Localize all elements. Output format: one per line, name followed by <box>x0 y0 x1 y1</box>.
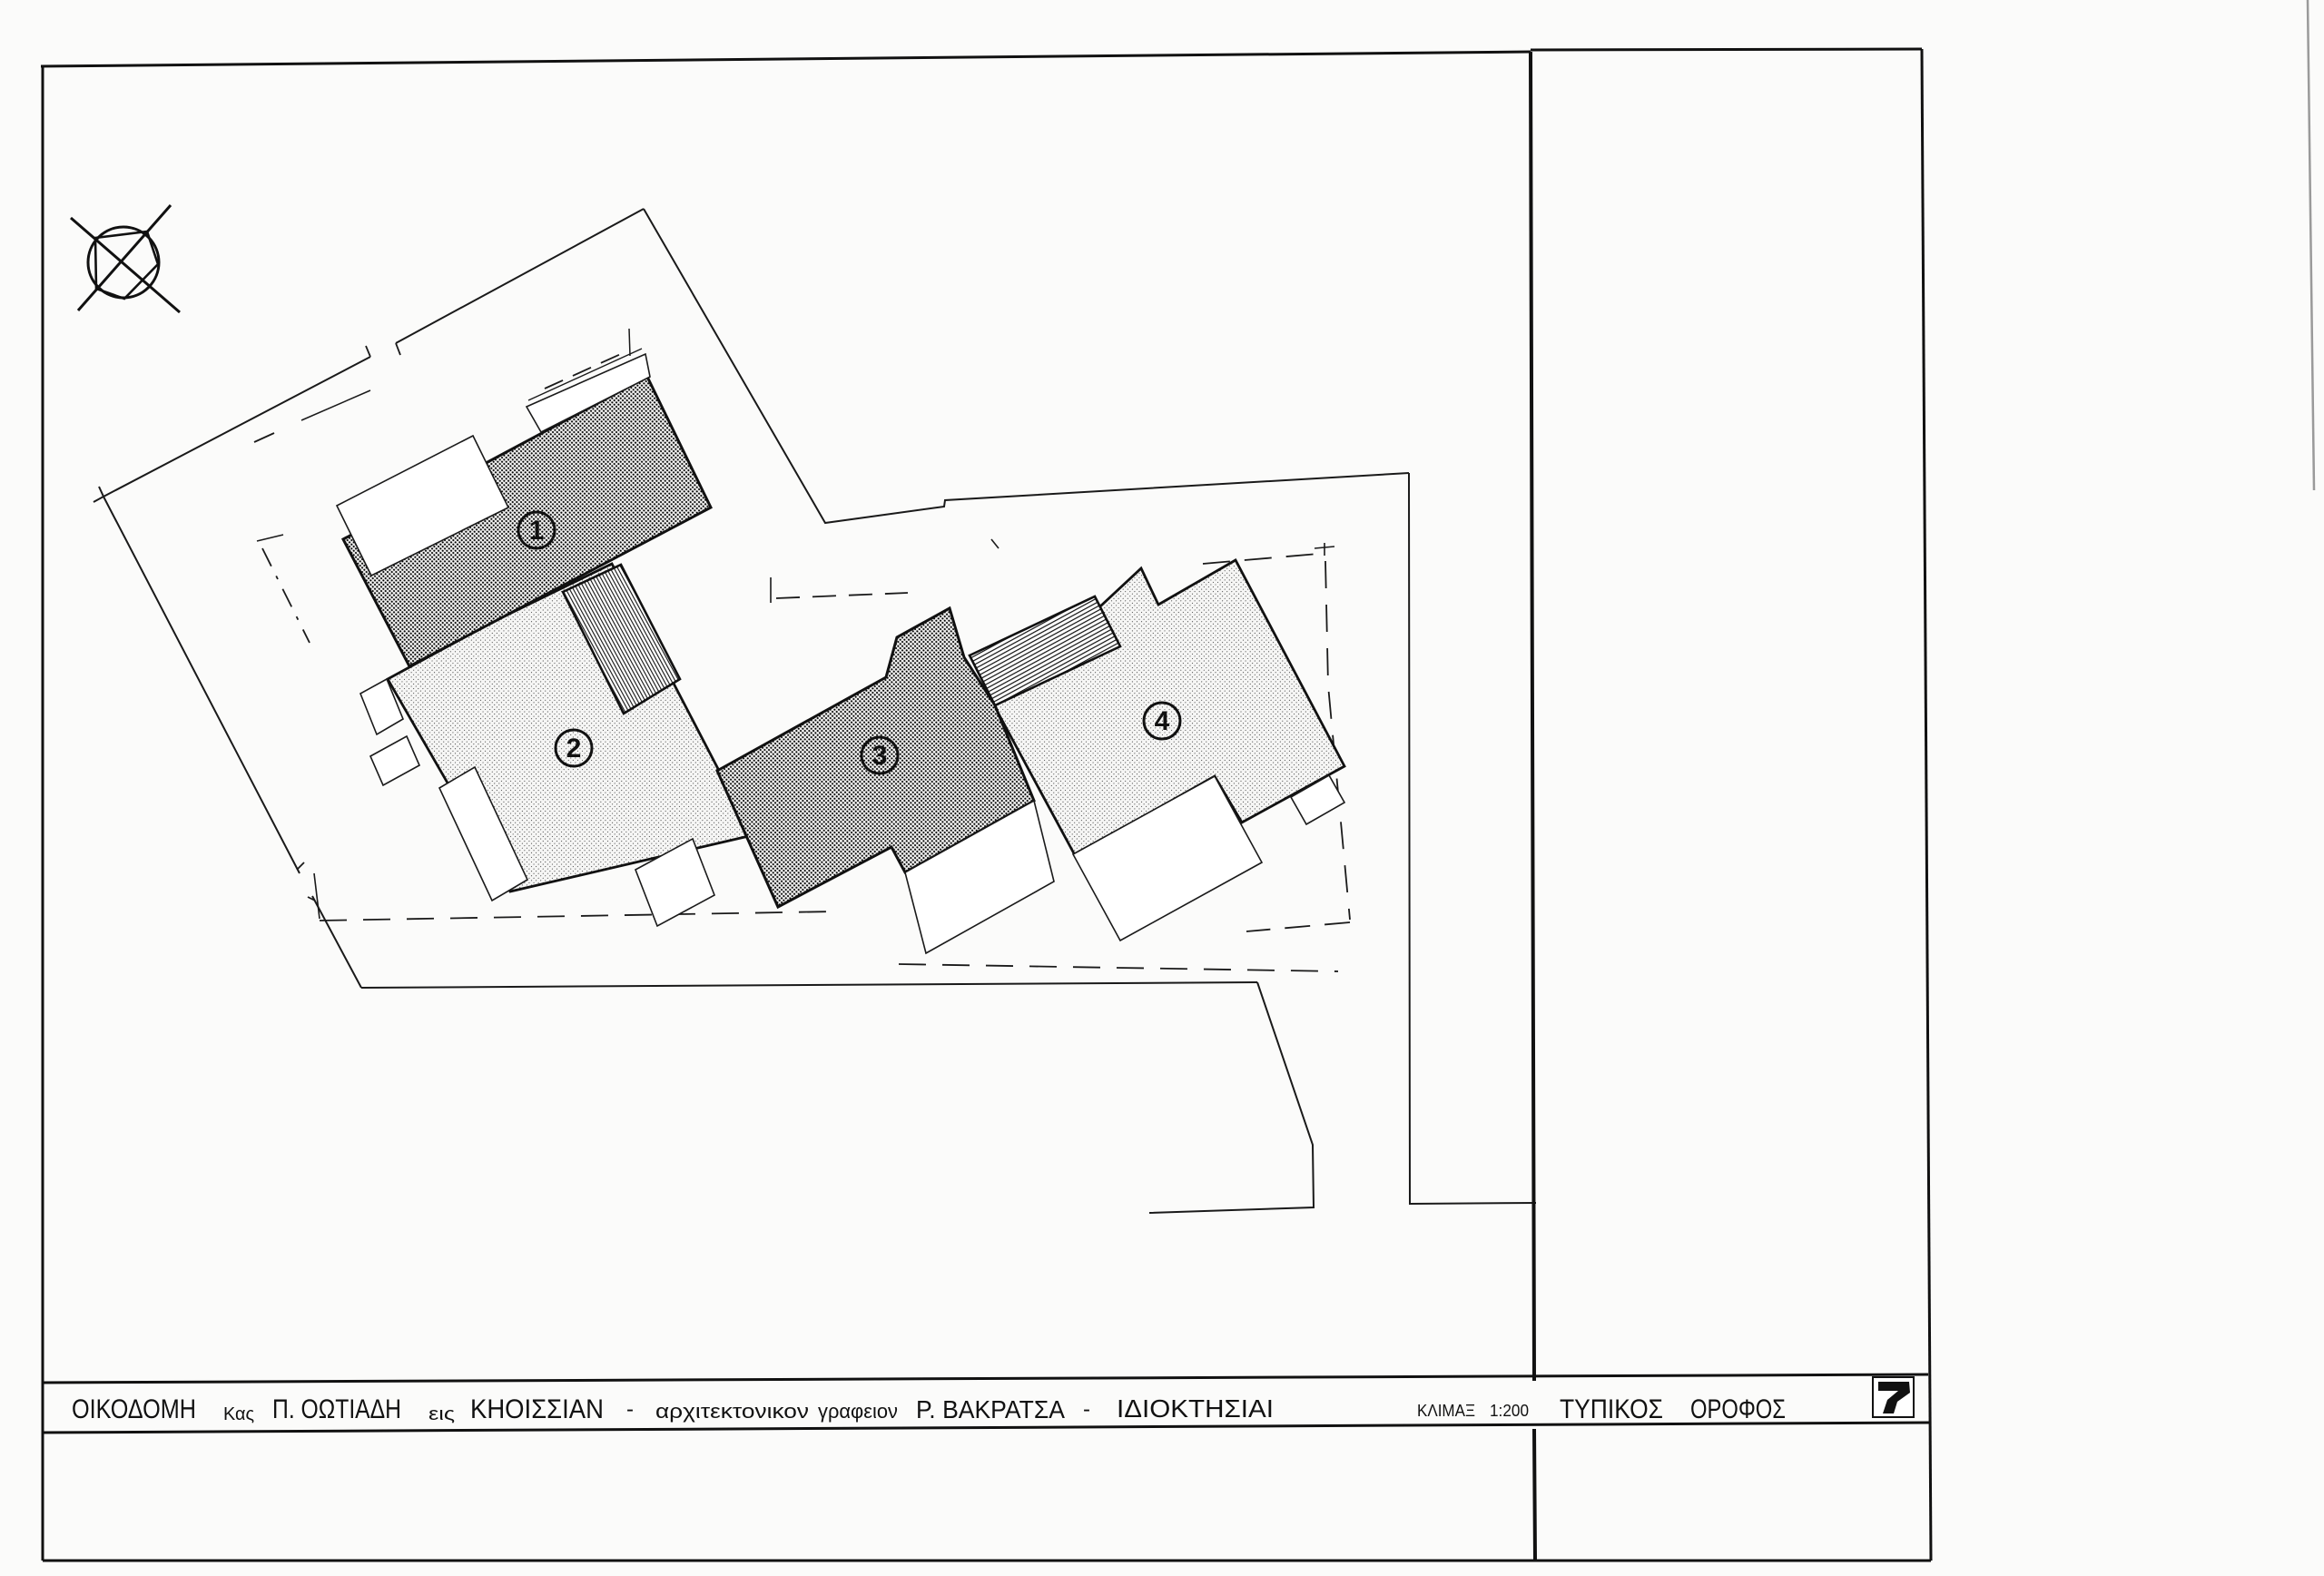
svg-text:γραφειον: γραφειον <box>818 1400 898 1423</box>
svg-text:1: 1 <box>529 516 545 546</box>
svg-text:ΟΡΟΦΟΣ: ΟΡΟΦΟΣ <box>1690 1394 1786 1424</box>
svg-text:2: 2 <box>566 734 582 763</box>
svg-text:ΚΛΙΜΑΞ: ΚΛΙΜΑΞ <box>1417 1402 1475 1420</box>
svg-text:-: - <box>626 1397 634 1422</box>
svg-text:1:200: 1:200 <box>1490 1402 1529 1420</box>
svg-text:ΙΔΙΟΚΤΗΣΙΑΙ: ΙΔΙΟΚΤΗΣΙΑΙ <box>1117 1394 1274 1423</box>
svg-text:ΟΙΚΟΔΟΜΗ: ΟΙΚΟΔΟΜΗ <box>72 1394 196 1424</box>
svg-text:ΚΗΟΙΣΣΙΑΝ: ΚΗΟΙΣΣΙΑΝ <box>470 1394 604 1424</box>
svg-text:4: 4 <box>1155 706 1170 736</box>
svg-text:αρχιτεκτονικον: αρχιτεκτονικον <box>655 1400 809 1423</box>
svg-text:Ρ. ΒΑΚΡΑΤΣΑ: Ρ. ΒΑΚΡΑΤΣΑ <box>916 1395 1065 1423</box>
svg-text:εις: εις <box>428 1404 455 1424</box>
svg-text:3: 3 <box>872 741 888 771</box>
svg-text:Κας: Κας <box>223 1404 254 1424</box>
svg-text:Π. ΟΩΤΙΑΔΗ: Π. ΟΩΤΙΑΔΗ <box>272 1394 401 1424</box>
svg-text:-: - <box>1083 1397 1090 1422</box>
svg-text:ΤΥΠΙΚΟΣ: ΤΥΠΙΚΟΣ <box>1560 1394 1663 1424</box>
